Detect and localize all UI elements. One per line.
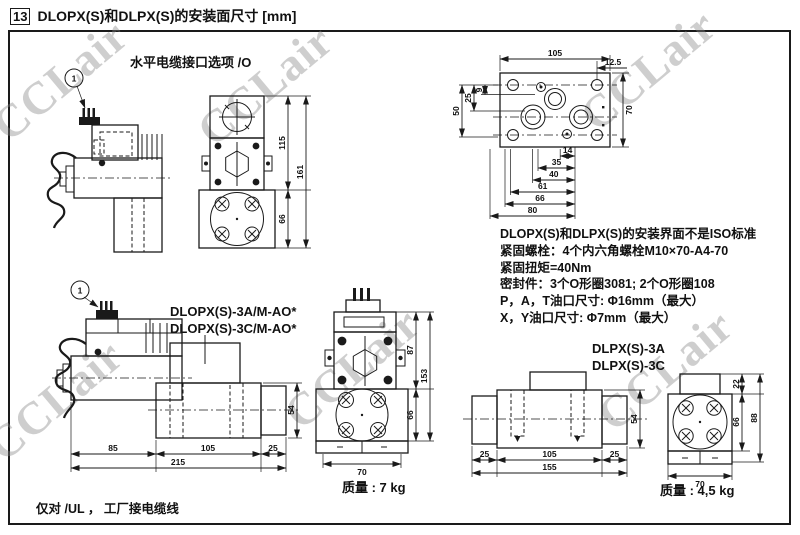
- dim-66b: 66: [535, 193, 545, 203]
- dim-85: 85: [108, 443, 118, 453]
- dim-25: 25: [480, 449, 490, 459]
- dlopx-front-view-drawing: 87 66 153 70: [312, 286, 442, 478]
- page-header: 13 DLOPX(S)和DLPX(S)的安装面尺寸 [mm]: [10, 6, 296, 26]
- dim-105: 105: [542, 449, 556, 459]
- dim-88: 88: [749, 413, 759, 423]
- note-line: P，A，T油口尺寸: Φ16mm（最大）: [500, 293, 756, 310]
- dim-25: 25: [463, 93, 473, 103]
- dim-9: 9: [474, 87, 484, 92]
- dim-22: 22: [731, 379, 741, 389]
- connector-pins-icon: [96, 301, 118, 319]
- note-line: DLOPX(S)和DLPX(S)的安装界面不是ISO标准: [500, 226, 756, 243]
- dim-25: 25: [268, 443, 278, 453]
- mounting-holes-icon: [508, 80, 603, 141]
- balloon-label: 1: [72, 74, 77, 84]
- footer-note: 仅对 /UL ， 工厂接电缆线: [36, 498, 179, 517]
- dim-70: 70: [624, 105, 634, 115]
- dim-12-5: 12.5: [605, 57, 622, 67]
- dim-35: 35: [552, 157, 562, 167]
- mounting-face-drawing: 105 12.5 9 25 50 70 14 35 40 61 66: [455, 35, 705, 220]
- dlopx-side-view-top-drawing: 1: [42, 62, 222, 260]
- dim-14: 14: [563, 145, 573, 155]
- fins-icon: [146, 323, 167, 353]
- dim-40: 40: [549, 169, 559, 179]
- connector-pins-icon: [353, 288, 370, 301]
- dim-115: 115: [277, 136, 287, 150]
- fins-icon: [142, 134, 162, 160]
- dim-66: 66: [731, 417, 741, 427]
- dim-25b: 25: [610, 449, 620, 459]
- mounting-notes: DLOPX(S)和DLPX(S)的安装界面不是ISO标准 紧固螺栓：4个内六角螺…: [500, 226, 756, 327]
- dim-153: 153: [419, 369, 429, 383]
- dlpx-side-view-drawing: 25 105 25 155 54: [455, 360, 655, 485]
- dlopx-front-view-top-drawing: 115 161 66: [198, 86, 323, 261]
- dim-50: 50: [451, 106, 461, 116]
- dim-105: 105: [548, 48, 562, 58]
- dim-80: 80: [528, 205, 538, 215]
- balloon-1: 1: [65, 69, 85, 108]
- dim-155: 155: [542, 462, 556, 472]
- dlopx-manifold-side-view-drawing: 1 85: [50, 276, 310, 491]
- datasheet-page: 13 DLOPX(S)和DLPX(S)的安装面尺寸 [mm] CCLair CC…: [0, 0, 800, 535]
- note-line: 紧固螺栓：4个内六角螺栓M10×70-A4-70: [500, 243, 756, 260]
- dim-54: 54: [629, 414, 639, 424]
- connector-pins-icon: [79, 108, 100, 125]
- dlpx-front-view-drawing: 22 66 88 70: [642, 358, 772, 498]
- balloon-label: 1: [78, 286, 83, 296]
- note-line: 紧固扭矩=40Nm: [500, 260, 756, 277]
- section-number: 13: [10, 8, 30, 25]
- dlpx-weight: 质量 : 4,5 kg: [660, 480, 734, 499]
- cable-clamp-icon: [48, 153, 76, 228]
- model-label: DLPX(S)-3A: [592, 340, 665, 357]
- dlopx-weight: 质量 : 7 kg: [342, 477, 406, 496]
- dim-66: 66: [277, 214, 287, 224]
- dim-87: 87: [405, 345, 415, 355]
- dim-105: 105: [201, 443, 215, 453]
- page-title: DLOPX(S)和DLPX(S)的安装面尺寸 [mm]: [37, 6, 296, 26]
- balloon-1: 1: [71, 281, 98, 307]
- dim-54: 54: [286, 405, 296, 415]
- note-line: 密封件：3个O形圈3081; 2个O形圈108: [500, 276, 756, 293]
- dim-161: 161: [295, 165, 305, 179]
- dim-61: 61: [538, 181, 548, 191]
- dim-66: 66: [405, 410, 415, 420]
- dim-70: 70: [357, 467, 367, 477]
- note-line: X，Y油口尺寸: Φ7mm（最大）: [500, 310, 756, 327]
- dim-215: 215: [171, 457, 185, 467]
